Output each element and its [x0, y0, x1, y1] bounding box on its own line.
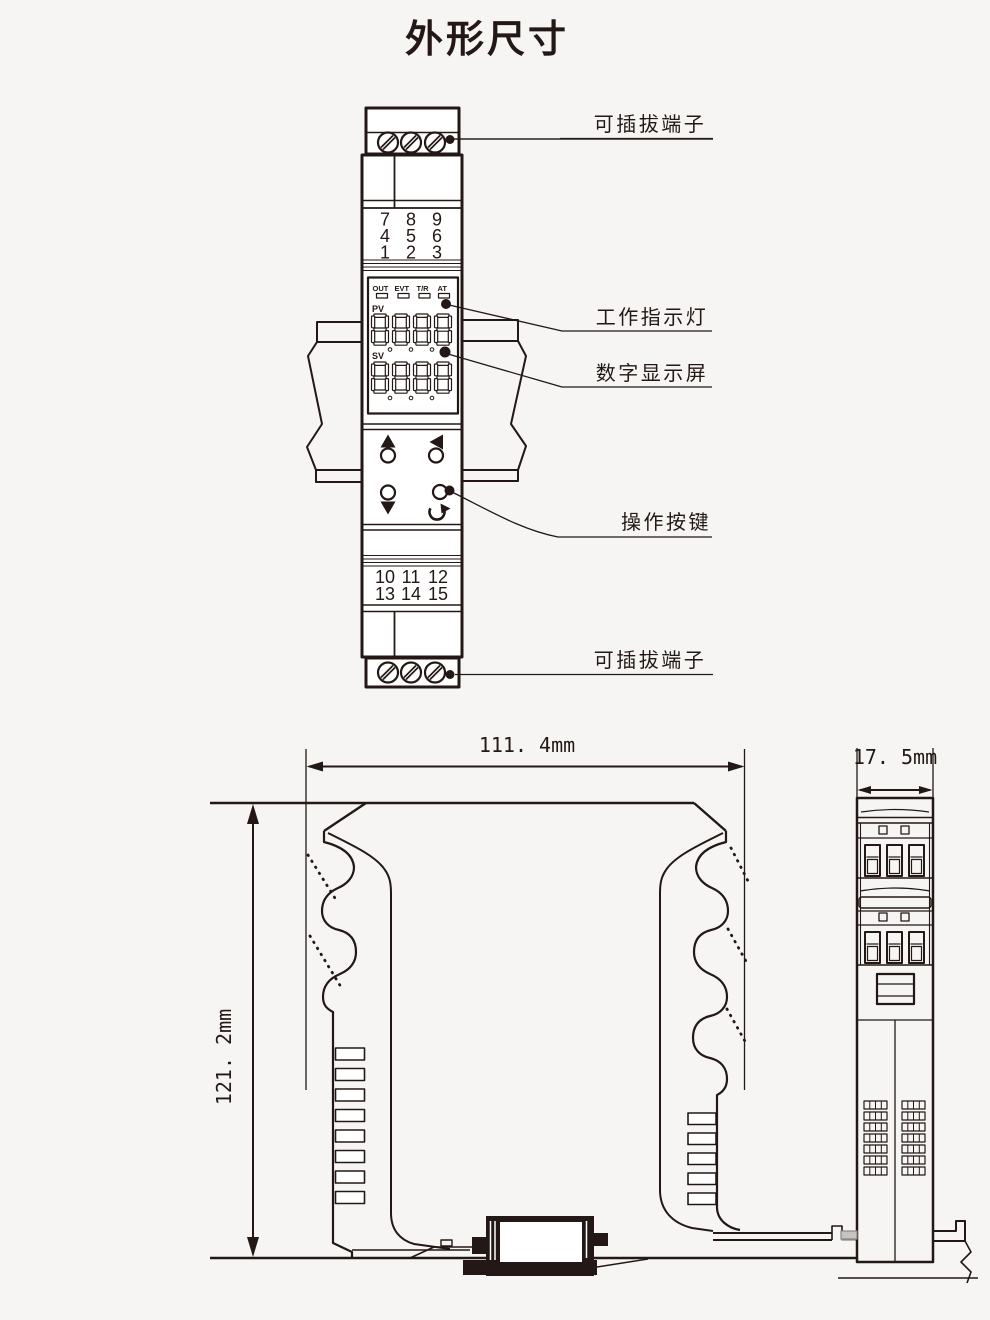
bottom-terminal-block [366, 658, 459, 687]
callout-terminal-bottom: 可插拔端子 [455, 649, 713, 675]
side-view-body [857, 798, 933, 1262]
vent-slots-left [336, 1048, 365, 1204]
callout-digital-display: 数字显示屏 [448, 354, 712, 387]
callout-label: 可插拔端子 [594, 649, 707, 672]
arrow-right-icon [728, 762, 745, 772]
indicator-label: AT [438, 284, 448, 293]
side-view-rail [838, 1221, 978, 1283]
break-line-icon [961, 1241, 971, 1283]
housing-left-outline [308, 803, 450, 1258]
callouts: 可插拔端子 工作指示灯 数字显示屏 操作按键 可插拔端子 [448, 113, 713, 675]
terminal-numbers-top: 7 8 9 4 5 6 1 2 3 [380, 210, 442, 263]
top-terminal-block [366, 108, 459, 154]
front-view: 7 8 9 4 5 6 1 2 3 OUT EVT T/R AT P [307, 108, 526, 687]
terminal-number: 15 [428, 584, 448, 604]
terminal-number: 2 [406, 243, 416, 263]
indicator-label: EVT [395, 284, 410, 293]
height-dimension: 121. 2mm [212, 804, 259, 1257]
pv-label: PV [372, 304, 384, 314]
width-dimension-label: 111. 4mm [479, 733, 575, 757]
side-view-drawing: 17. 5mm [838, 745, 978, 1283]
depth-dimension: 17. 5mm [853, 745, 937, 798]
arrow-right-icon [919, 786, 933, 794]
callout-label: 操作按键 [621, 511, 711, 534]
callout-dot [441, 299, 451, 309]
main-dimension-drawing: 111. 4mm 121. 2mm [210, 733, 856, 1276]
terminal-number: 3 [432, 243, 442, 263]
arrow-left-icon [858, 786, 872, 794]
din-rail-right [462, 320, 526, 481]
callout-dot [440, 347, 451, 358]
height-dimension-label: 121. 2mm [212, 1009, 236, 1105]
arrow-down-icon [247, 1237, 259, 1257]
page-title: 外形尺寸 [405, 19, 569, 61]
rail-end-left [841, 1231, 857, 1239]
indicator-label: OUT [373, 284, 389, 293]
outline-dimensions-drawing: 外形尺寸 [0, 0, 990, 1320]
din-rail-left [307, 322, 362, 482]
callout-dot [446, 135, 455, 144]
sv-label: SV [372, 351, 384, 361]
width-dimension: 111. 4mm [306, 733, 745, 1090]
arrow-left-icon [307, 762, 324, 772]
terminal-number: 14 [401, 584, 421, 604]
side-latch-block [877, 974, 914, 1004]
callout-indicator-light: 工作指示灯 [449, 305, 712, 331]
callout-dot [445, 486, 455, 496]
callout-label: 可插拔端子 [594, 113, 707, 136]
terminal-number: 13 [375, 584, 395, 604]
callout-label: 工作指示灯 [596, 306, 709, 329]
housing-right-outline [660, 803, 748, 1231]
callout-operation-buttons: 操作按键 [452, 492, 712, 537]
indicator-label: T/R [417, 284, 430, 293]
vent-slots-right [688, 1113, 716, 1205]
arrow-up-icon [247, 804, 259, 824]
callout-dot [446, 670, 455, 679]
terminal-numbers-bottom: 10 11 12 13 14 15 [375, 567, 448, 604]
terminal-number: 1 [380, 243, 390, 263]
depth-dimension-label: 17. 5mm [853, 745, 937, 769]
callout-label: 数字显示屏 [596, 362, 709, 385]
callout-terminal-top: 可插拔端子 [454, 113, 713, 139]
din-clip [463, 1216, 648, 1276]
